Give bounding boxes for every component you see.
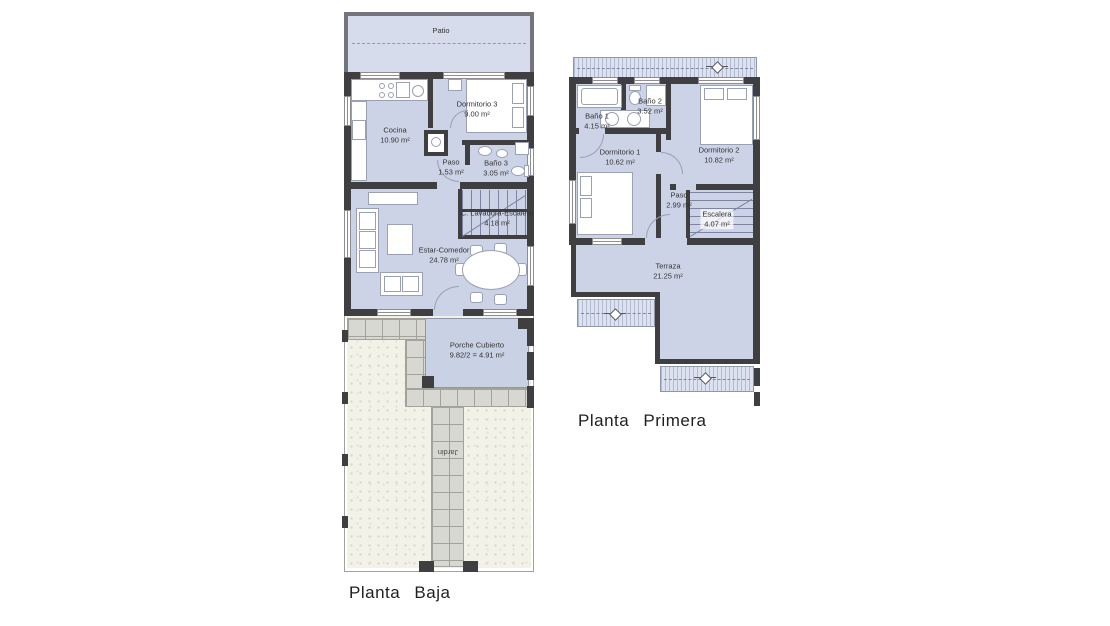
fence-post	[527, 318, 534, 346]
room-name: Dormitorio 1	[600, 147, 641, 157]
tile-path	[405, 388, 529, 407]
wall	[344, 15, 348, 72]
room-label-escalera: Escalera 4.07 m²	[700, 209, 733, 229]
dining-chair	[494, 294, 507, 305]
porch-post	[422, 376, 434, 388]
room-name: Paso	[438, 157, 463, 167]
pillow	[580, 198, 592, 218]
room-name: Baño 3	[483, 158, 508, 168]
pillow	[727, 88, 747, 100]
window	[592, 238, 622, 245]
vent-icon	[706, 61, 728, 72]
room-label-lavadora-escalera: C. Lavadora-Escalera 4.18 m²	[461, 208, 534, 228]
window	[360, 72, 400, 79]
wall	[655, 292, 660, 364]
stove-burner	[388, 83, 394, 89]
room-area: 3.05 m²	[483, 168, 508, 178]
room-label-paso: Paso 1.53 m²	[438, 157, 463, 177]
dining-table	[462, 250, 520, 290]
room-area: 10.90 m²	[380, 135, 410, 145]
window	[698, 77, 744, 84]
room-name: Paso	[666, 190, 691, 200]
room-label-dormitorio1: Dormitorio 1 10.62 m²	[600, 147, 641, 167]
pillow	[512, 107, 524, 128]
sofa-cushion	[384, 276, 401, 292]
patio-door	[443, 72, 505, 79]
fence-post	[342, 516, 348, 528]
room-name: C. Lavadora-Escalera	[461, 208, 534, 218]
wall	[344, 12, 534, 16]
room-label-porche: Porche Cubierto 9.82/2 = 4.91 m²	[450, 340, 505, 360]
wall	[465, 145, 470, 165]
room-label-terraza: Terraza 21.25 m²	[653, 261, 683, 281]
door-opening	[437, 182, 460, 189]
kitchen-counter	[351, 101, 367, 181]
room-name: Baño 1	[584, 111, 609, 121]
bathtub-basin	[581, 88, 618, 105]
coffee-table	[387, 224, 413, 255]
fence-post	[527, 352, 534, 380]
gate-post	[463, 561, 478, 572]
wall	[458, 235, 534, 239]
vent-icon	[604, 308, 626, 319]
vent-icon	[694, 372, 716, 383]
room-area: 2.99 m²	[666, 200, 691, 210]
window	[569, 180, 576, 224]
window	[592, 77, 618, 84]
fence-post	[754, 392, 760, 406]
room-area: 9.00 m²	[457, 109, 498, 119]
room-name: Dormitorio 3	[457, 99, 498, 109]
toilet	[511, 166, 525, 176]
sofa-cushion	[359, 231, 376, 249]
roof-strip	[573, 57, 757, 78]
bathroom-sink	[478, 146, 492, 156]
bidet	[496, 149, 508, 158]
floorplan-sheet: Patio	[0, 0, 1110, 626]
room-name: Escalera	[702, 209, 731, 219]
room-name: Terraza	[653, 261, 683, 271]
tile-path	[347, 318, 426, 340]
room-label-bano1: Baño 1 4.15 m²	[584, 111, 609, 131]
room-label-bano2: Baño 2 3.52 m²	[637, 96, 662, 116]
sofa-cushion	[359, 250, 376, 268]
stove-burner	[379, 83, 385, 89]
room-name: Dormitorio 2	[699, 145, 740, 155]
shower	[515, 142, 529, 155]
fence-post	[527, 386, 534, 408]
patio-dashed-line	[352, 43, 526, 44]
room-label-dormitorio2: Dormitorio 2 10.82 m²	[699, 145, 740, 165]
fence-post	[342, 454, 348, 466]
room-name: Cocina	[380, 125, 410, 135]
room-area: 4.07 m²	[702, 219, 731, 229]
pillow	[512, 83, 524, 104]
wall	[753, 245, 760, 364]
sofa-cushion	[359, 212, 376, 230]
plan-title-planta-baja: Planta Baja	[349, 583, 450, 603]
room-area: 21.25 m²	[653, 271, 683, 281]
kitchen-sink	[396, 82, 410, 98]
shaft-fixture	[431, 137, 441, 147]
room-area: 3.52 m²	[637, 106, 662, 116]
room-name: Estar-Comedor	[419, 245, 470, 255]
room-label-estar-comedor: Estar-Comedor 24.78 m²	[419, 245, 470, 265]
stove-burner	[388, 92, 394, 98]
room-label-bano3: Baño 3 3.05 m²	[483, 158, 508, 178]
room-area: 10.62 m²	[600, 157, 641, 167]
tile-walkway	[431, 406, 464, 567]
gate-post	[419, 561, 434, 572]
room-name: Porche Cubierto	[450, 340, 505, 350]
room-area: 1.53 m²	[438, 167, 463, 177]
terrace-door-opening	[645, 238, 687, 245]
stove-burner	[379, 92, 385, 98]
room-area: 4.15 m²	[584, 121, 609, 131]
wall	[571, 292, 660, 297]
room-label-paso: Paso 2.99 m²	[666, 190, 691, 210]
window	[634, 77, 660, 84]
room-name: Patio	[432, 26, 449, 36]
fence-post	[754, 368, 760, 386]
porch-door-opening	[433, 309, 463, 316]
plan-title-planta-primera: Planta Primera	[578, 411, 706, 431]
pillow	[704, 88, 724, 100]
room-area: 4.18 m²	[461, 218, 534, 228]
window	[483, 309, 517, 316]
sideboard	[368, 192, 418, 205]
pillow	[580, 176, 592, 196]
room-label-dormitorio3: Dormitorio 3 9.00 m²	[457, 99, 498, 119]
room-area: 24.78 m²	[419, 255, 470, 265]
room-name: Jardin	[438, 447, 458, 457]
wall	[428, 78, 433, 128]
window	[344, 210, 351, 258]
fence-post	[342, 392, 348, 404]
window	[377, 309, 411, 316]
room-area: 10.82 m²	[699, 155, 740, 165]
fence-post	[342, 330, 348, 342]
wall	[571, 245, 576, 296]
oven	[352, 120, 366, 140]
toilet-tank	[524, 165, 529, 177]
terrace-area	[659, 292, 754, 360]
room-label-patio: Patio	[432, 26, 449, 36]
wall	[530, 15, 534, 72]
room-area: 9.82/2 = 4.91 m²	[450, 350, 505, 360]
window	[753, 96, 760, 140]
sink-bowl	[412, 85, 424, 97]
window	[527, 246, 534, 286]
room-label-jardin: Jardin	[438, 447, 458, 457]
wall	[655, 359, 759, 364]
room-name: Baño 2	[637, 96, 662, 106]
window	[344, 96, 351, 126]
nightstand	[448, 79, 462, 91]
dining-chair	[470, 292, 483, 303]
room-label-cocina: Cocina 10.90 m²	[380, 125, 410, 145]
window	[527, 86, 534, 116]
sofa-cushion	[402, 276, 419, 292]
